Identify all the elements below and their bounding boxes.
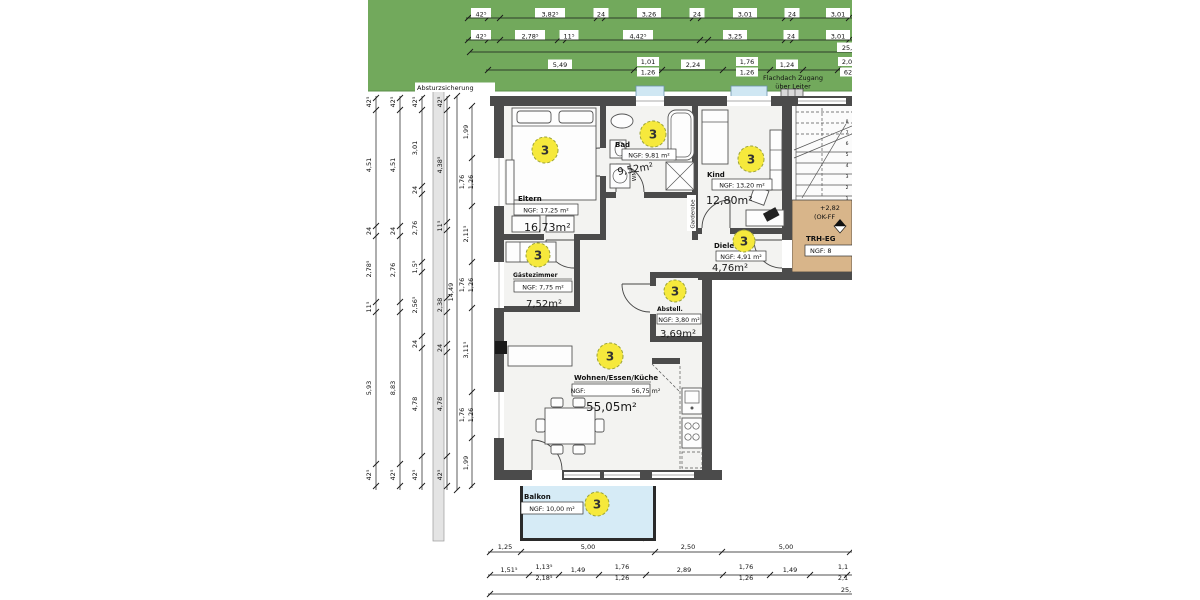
area-label: 16,73m² <box>524 221 571 234</box>
dim-total-label: 25, <box>841 586 851 594</box>
dim-label: 1,99 <box>462 456 470 470</box>
dim-label: 2,11⁵ <box>462 225 470 242</box>
dim-label: 2,18⁵ <box>535 574 552 582</box>
stair-step-number: 8 <box>846 119 849 125</box>
dim-label: 42⁵ <box>436 469 444 480</box>
dim-label: 2,78⁵ <box>521 33 538 41</box>
dim-label: 1,26 <box>467 175 475 189</box>
bed-kind <box>702 110 728 164</box>
dim-label: 4,78 <box>411 397 419 411</box>
dim-label: 4,42⁵ <box>629 33 646 41</box>
dim-label: 1,26 <box>467 408 475 422</box>
dim-label: 5,00 <box>779 543 793 551</box>
dim-label: 42⁵ <box>411 469 419 480</box>
dim-label: 1,49 <box>571 566 585 574</box>
ngf-label: NGF: 10,00 m² <box>529 506 575 513</box>
dim-label: 3,82⁵ <box>541 11 558 19</box>
dim-total-label: 25, <box>842 44 852 52</box>
dim-label: 2,89 <box>677 566 691 574</box>
roof-window-glass <box>731 86 767 97</box>
dim-label: 1,26 <box>739 574 753 582</box>
dim-label: 3,01 <box>831 11 845 19</box>
stair-step-number: 3 <box>846 174 849 180</box>
floor-plan-drawing: 42⁵ 3,82⁵ 24 3,26 24 3,01 24 3,01 42⁵ 2,… <box>0 0 1200 600</box>
ngf-label: NGF: 17,25 m² <box>523 208 569 215</box>
dim-label: 1,76 <box>458 408 466 422</box>
area-label: 55,05m² <box>586 400 637 414</box>
unit-number: 3 <box>593 498 601 512</box>
dim-label: 1,25 <box>498 543 512 551</box>
room-name-gaestezimmer: Gästezimmer <box>513 272 558 279</box>
dim-label: 2,38 <box>436 298 444 312</box>
garderobe-label: Garderobe <box>691 199 697 229</box>
wardrobe <box>506 160 514 204</box>
dim-label: 24 <box>436 344 444 352</box>
dim-label: 1,76 <box>458 278 466 292</box>
desk <box>746 210 784 226</box>
room-name-diele: Diele <box>714 242 734 250</box>
dim-label: 42⁵ <box>365 96 373 107</box>
room-name-eltern: Eltern <box>518 195 542 203</box>
dim-label: 4,51 <box>389 158 397 172</box>
dim-label: 2,50 <box>681 543 695 551</box>
sideboard <box>508 346 572 366</box>
unit-number: 3 <box>649 128 657 142</box>
unit-number: 3 <box>541 144 549 158</box>
dim-label: 1,13⁵ <box>535 563 552 571</box>
ngf-label: NGF: 7,75 m² <box>522 285 564 292</box>
stair-step-number: 6 <box>846 141 849 147</box>
stair-step-number: 5 <box>846 152 849 158</box>
dim-label: 1,99 <box>462 125 470 139</box>
chair <box>573 445 585 454</box>
unit-number: 3 <box>747 153 755 167</box>
area-label: 7,52m² <box>526 299 562 310</box>
ngf-label: NGF: 3,80 m² <box>658 317 700 324</box>
dim-label: 4,78 <box>436 397 444 411</box>
stairwell-ngf-label: NGF: 8 <box>810 247 832 255</box>
entrance-door-gap <box>782 240 792 268</box>
dim-label: 2,76 <box>411 221 419 235</box>
dim-label: 4,51 <box>365 158 373 172</box>
dim-label: 2,56⁵ <box>411 296 419 313</box>
stairwell-name: TRH-EG <box>806 235 836 243</box>
unit-number: 3 <box>671 285 679 299</box>
dim-label: 24 <box>411 186 419 194</box>
dim-label: 1,76 <box>458 175 466 189</box>
unit-number: 3 <box>606 350 614 364</box>
dim-label: 2,78⁵ <box>365 260 373 277</box>
dim-label: 5,00 <box>581 543 595 551</box>
dim-label: 2,24 <box>686 61 700 69</box>
room-name-bad: Bad <box>615 141 630 149</box>
dim-label: 42⁵ <box>476 11 487 19</box>
dim-label: 2,76 <box>389 263 397 277</box>
dim-label: 1,51⁵ <box>500 566 517 574</box>
dim-label: 3,01 <box>411 141 419 155</box>
dim-label: 11⁵ <box>365 301 373 312</box>
dim-label: 24 <box>693 11 701 19</box>
ngf-value: 56,75 m² <box>632 388 661 395</box>
chair <box>536 419 545 432</box>
chair <box>595 419 604 432</box>
area-label: 12,80m² <box>706 194 753 207</box>
balcony-door-gap <box>532 470 562 480</box>
dim-label: 42⁵ <box>365 469 373 480</box>
dim-label: 1,76 <box>740 58 754 66</box>
dim-label: 2,1 <box>838 574 848 582</box>
cooktop <box>682 418 702 448</box>
dim-label: 3,11⁵ <box>462 341 470 358</box>
washbasin <box>611 114 633 128</box>
chair <box>551 445 563 454</box>
dim-label: 24 <box>389 227 397 235</box>
dim-label: 1,1 <box>838 563 848 571</box>
chair <box>551 398 563 407</box>
stair-step-number: 1 <box>846 196 849 202</box>
stairwell-level-label: +2,82 <box>820 204 840 212</box>
unit-number: 3 <box>740 235 748 249</box>
dim-label: 11⁵ <box>564 33 575 41</box>
unit-number: 3 <box>534 249 542 263</box>
stair-step-number: 4 <box>846 163 849 169</box>
garderobe-label-group: Garderobe <box>687 195 697 231</box>
dim-label: 42⁵ <box>389 469 397 480</box>
stair-step-number: 2 <box>846 185 849 191</box>
pillow <box>517 111 551 123</box>
dim-label: 3,25 <box>728 33 742 41</box>
room-name-wohnen: Wohnen/Essen/Küche <box>574 374 658 382</box>
dim-label: 24 <box>365 227 373 235</box>
ngf-label: NGF: 4,91 m² <box>720 254 762 261</box>
roof-window-glass <box>636 86 664 97</box>
dim-label: 1,49 <box>783 566 797 574</box>
room-name-abstellraum: Abstell. <box>657 306 683 313</box>
stair-step-number: 7 <box>846 130 849 136</box>
dim-label: 24 <box>411 340 419 348</box>
dim-label: 62 <box>844 69 852 77</box>
ngf-label: NGF: 13,20 m² <box>719 183 765 190</box>
dim-label: 2,0 <box>842 58 852 66</box>
ngf-label: NGF: 9,81 m² <box>628 153 670 160</box>
dim-label: 1,76 <box>739 563 753 571</box>
dim-label: 11⁵ <box>436 220 444 231</box>
chair <box>573 398 585 407</box>
room-name-kind: Kind <box>707 171 725 179</box>
dim-label: 3,01 <box>831 33 845 41</box>
dim-label: 1,5⁵ <box>411 260 419 273</box>
dim-label: 1,26 <box>615 574 629 582</box>
floor-plan-sheet: 42⁵ 3,82⁵ 24 3,26 24 3,01 24 3,01 42⁵ 2,… <box>0 0 1200 600</box>
dim-label: 42⁵ <box>411 96 419 107</box>
absturzsicherung-label: Absturzsicherung <box>417 84 474 92</box>
stairwell-level-ref-label: (OK-FF <box>814 213 835 221</box>
dim-label: 1,26 <box>467 278 475 292</box>
area-label: 3,69m² <box>660 329 696 340</box>
dim-label: 4,38⁵ <box>436 156 444 173</box>
pillow <box>559 111 593 123</box>
dim-label: 24 <box>787 33 795 41</box>
area-label: 4,76m² <box>712 263 748 274</box>
dim-label: 42⁵ <box>389 96 397 107</box>
dim-label: 5,49 <box>553 61 567 69</box>
dim-total-label: 14,49 <box>447 283 455 302</box>
ngf-label: NGF: <box>571 388 586 395</box>
dim-label: 42⁵ <box>436 96 444 107</box>
dim-label: 3,26 <box>642 11 656 19</box>
dim-label: 1,01 <box>641 58 655 66</box>
dim-label: 24 <box>788 11 796 19</box>
dim-label: 3,01 <box>738 11 752 19</box>
dim-label: 1,24 <box>780 61 794 69</box>
flachdach-label-line1: Flachdach Zugang <box>763 74 823 82</box>
dim-label: 24 <box>597 11 605 19</box>
chimney <box>495 341 507 354</box>
dim-label: 1,76 <box>615 563 629 571</box>
dim-label: 5,93 <box>365 381 373 395</box>
room-name-balkon: Balkon <box>524 493 551 501</box>
dim-label: 1,26 <box>740 69 754 77</box>
dim-label: 1,26 <box>641 69 655 77</box>
dim-label: 42⁵ <box>476 33 487 41</box>
dim-label: 8,83 <box>389 381 397 395</box>
